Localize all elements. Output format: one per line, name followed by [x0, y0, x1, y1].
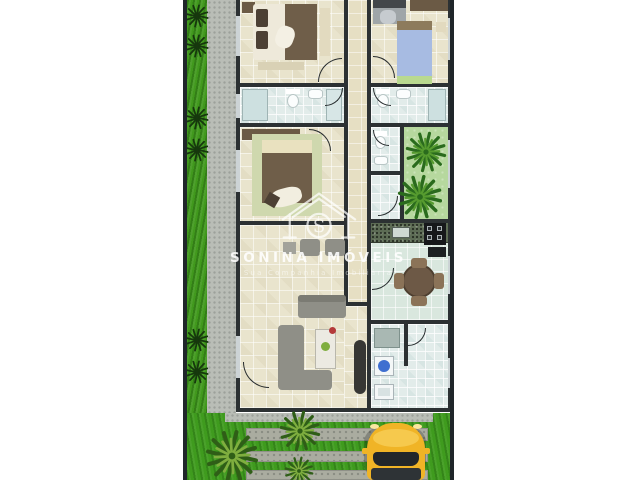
- left-grass-strip: [187, 0, 207, 480]
- window-left-3: [236, 150, 240, 192]
- kitchen-sink: [392, 227, 410, 238]
- patio-palm-1: [405, 131, 447, 173]
- bedroom1-pillow-1: [256, 9, 268, 27]
- bedroom3-bed-head: [262, 140, 312, 153]
- dining-chair-south: [411, 296, 427, 306]
- stove-burner-4: [437, 235, 442, 240]
- bedroom2-nightstand: [436, 22, 446, 32]
- lawn-fern-1: [205, 429, 259, 480]
- strip-palm-4: [185, 138, 209, 162]
- living-side-table: [283, 242, 296, 254]
- strip-palm-3: [185, 106, 209, 130]
- bathroom2-sink: [396, 89, 411, 99]
- stove-burner-3: [427, 235, 432, 240]
- lawn-fern-2: [279, 410, 321, 452]
- strip-palm-5: [185, 328, 209, 352]
- car-hood-shine: [373, 429, 419, 447]
- dining-chair-north: [411, 258, 427, 268]
- dining-table: [402, 264, 436, 298]
- car-mirror-left: [362, 448, 369, 454]
- bathroom1-shower: [242, 89, 268, 121]
- service-cabinet: [374, 328, 400, 348]
- floorplan-image: S SONINA IMÓVEIS Sua Companhia Imobiliár…: [0, 0, 640, 480]
- stove-burner-2: [437, 226, 442, 231]
- bathroom3-sink: [374, 156, 388, 165]
- window-left-1: [236, 16, 240, 56]
- bedroom2-bed-body: [397, 30, 432, 76]
- bedroom1-dresser: [320, 8, 330, 56]
- bedroom2-wardrobe: [410, 0, 448, 11]
- bedroom1-bench: [258, 62, 304, 70]
- car-mirror-right: [423, 448, 430, 454]
- stove-burner-1: [427, 226, 432, 231]
- bedroom1-pillow-2: [256, 31, 268, 49]
- car-headlight-left: [370, 424, 379, 429]
- patio-palm-2: [397, 174, 443, 220]
- front-walk-slab: [225, 413, 433, 422]
- bathroom1-toilet-bowl: [287, 94, 299, 108]
- coffee-table-plant-green: [321, 342, 330, 351]
- living-armchair-1: [300, 239, 320, 256]
- window-left-2: [236, 94, 240, 118]
- dining-chair-west: [394, 273, 404, 289]
- plot-border-right: [450, 0, 454, 480]
- strip-palm-1: [185, 4, 209, 28]
- car-windshield: [373, 452, 419, 466]
- living-l-sofa-foot: [278, 370, 332, 390]
- window-left-4: [236, 336, 240, 378]
- corridor-floor: [348, 0, 367, 302]
- living-sofa-top-back: [298, 295, 346, 302]
- strip-palm-6: [185, 360, 209, 384]
- bathroom1-sink: [308, 89, 323, 99]
- bedroom2-bed-foot: [397, 76, 432, 84]
- coffee-table-flower-red: [329, 327, 336, 334]
- bedroom2-desk-top: [373, 0, 406, 8]
- plot-border-left: [183, 0, 187, 480]
- tv-sideboard: [354, 340, 366, 394]
- bathroom2-shower: [428, 89, 446, 121]
- laundry-sink-basin: [378, 388, 390, 396]
- washing-machine-drum: [378, 360, 390, 372]
- strip-palm-2: [185, 34, 209, 58]
- dining-chair-east: [434, 273, 444, 289]
- left-walkway: [207, 0, 236, 413]
- bedroom2-chair: [380, 10, 396, 24]
- car-headlight-right: [413, 424, 422, 429]
- kitchen-oven: [428, 247, 446, 257]
- lawn-fern-3: [284, 456, 314, 480]
- living-armchair-2: [325, 239, 345, 256]
- bedroom2-bed-head: [397, 21, 432, 30]
- car-roof: [371, 468, 421, 480]
